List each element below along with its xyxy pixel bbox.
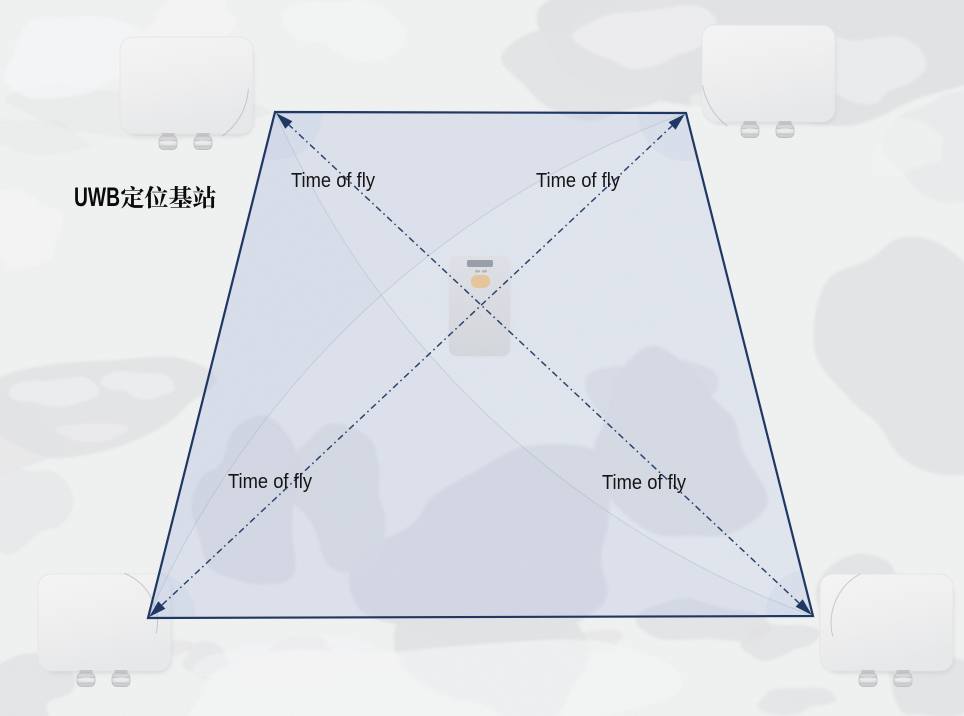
svg-text:Time of fly: Time of fly <box>291 170 375 192</box>
svg-text:Time of fly: Time of fly <box>228 471 312 493</box>
svg-text:Time of fly: Time of fly <box>602 472 686 494</box>
svg-text:UWB: UWB <box>74 182 120 212</box>
svg-text:Time of fly: Time of fly <box>536 170 620 192</box>
